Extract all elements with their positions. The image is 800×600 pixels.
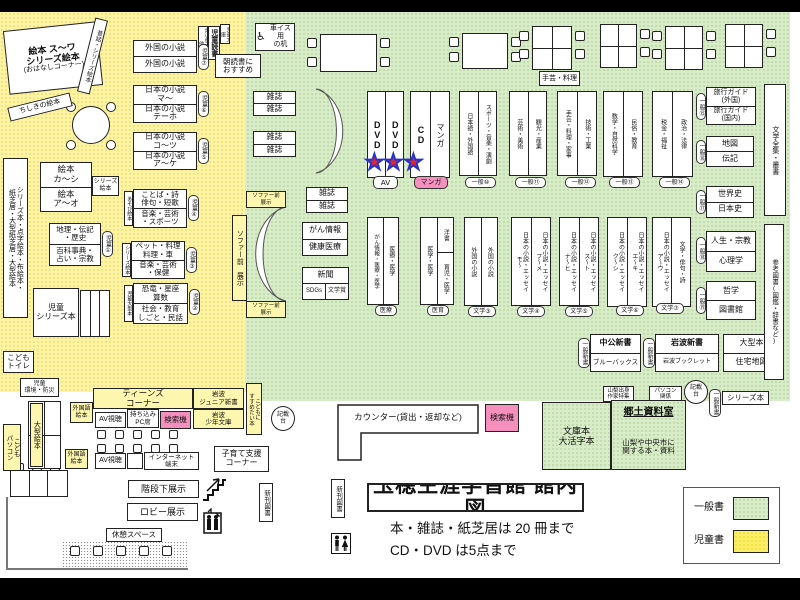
chair [116,546,126,556]
chair [380,38,390,48]
shelf-label: 外国の小説 [481,218,498,305]
sofa-front-display-strip: ソファー前 展示 [232,215,247,301]
chair [766,29,776,39]
shelf-label: 芸術・美術 [510,92,528,175]
chair [519,31,529,41]
chair [766,47,776,57]
av-booth-1: AV視聴 [95,412,126,428]
legend-general-label: 一般書 [689,500,729,516]
shelf-label: ブルーバックス [591,353,640,372]
stack-general-10: 日本語・外国語 スポーツ・音楽・演劇 [459,91,497,176]
shugei-ryori-table-label: 手芸・料理 [539,71,580,86]
shelf-label: ことば・詩 俳句・短歌 [134,190,186,208]
reading-table [600,24,637,68]
shelf-label: 民俗・教育 [623,92,643,176]
badge-jido-6: 児童⑥ [198,91,209,117]
series-ehon-tag: シリーズ 絵本 [92,176,119,196]
shelf-label: 哲学 [707,282,755,300]
shelf-label: 育児・医学 [438,252,454,304]
chair [652,31,662,41]
badge-jido-3: 児童③ [186,247,197,273]
stack-general-11: 芸術・美術 観光・産業 [509,91,547,176]
badge-medical-1: 医療 [375,305,397,316]
borrow-limit-note: 本・雑誌・紙芝居は 20 冊まで [390,517,575,537]
ogata-ehon-strip: 大型絵本 [30,403,43,467]
badge-general-11: 一般⑪ [515,177,546,188]
map-title: 玉穂生涯学習館 館内図 [367,483,584,512]
iwanami-shinsho-shelf: 岩波新書 岩波ブックレット [655,334,719,372]
shelf-label: 雑誌 [307,188,347,200]
kids-shelf-pet: ペット・料理 料理・車 音楽・芸術 ・保健 [131,241,185,279]
shelf-label: マンガ [430,92,450,177]
shelf-label: 日本語・外国語 [460,92,478,175]
lobby-display: ロビー展示 [127,503,198,521]
shelf-label: 政治・法律 [672,92,692,176]
jido-ogata-strip: 児童大型本 [124,285,133,322]
kids-kankyo-box: 児童 環境・防災 [20,378,59,397]
wheelchair-desk-box: ♿ 車イス用 の机 [255,23,295,51]
badge-general-19: 一般⑲ [696,287,706,314]
shelf-label: 数学・自然科学 [604,92,623,176]
chair [151,430,160,439]
badge-literature-7: 文学⑦ [656,303,684,314]
wall-line [6,568,188,570]
wheelchair-desk-label: 車イス用 の机 [267,25,294,48]
badge-general-15: 一般⑮ [696,93,706,120]
shelf-unit [80,290,110,337]
bungaku-zenshu-strip: 文学全集・叢書 [764,84,786,216]
badge-general-14: 一般⑭ [659,177,690,188]
stack-medical-1: がん情報・医療・医学 医療・医学 [367,217,399,305]
curved-shelf [245,205,291,303]
library-floor-map: 絵本 ス〜ワ シリーズ絵本 (おはなしコーナー) 昔話・シリーズ絵本 ちしきの絵… [0,0,800,600]
shelf-label: 新聞 [303,268,348,283]
shelf-label: 日本の小説・エッセイ フ〜メ [531,218,551,305]
chair [706,49,716,59]
kyodo-shiryo-room: 郷土資料室 山梨や中央市に 関する本・資料 [611,400,686,470]
teens-corner-header: ティーンズ コーナー [93,388,193,409]
shelf-label: 地図 [707,137,753,151]
reading-table [10,470,68,497]
shelf-label: 日本の小説・エッセイ ス〜ト [579,218,599,305]
shelf-label: 文学賞 [325,284,348,299]
chair [640,47,650,57]
shelf-label: 音楽・芸術 ・保健 [132,260,184,279]
iwanami-shonen-box: 岩波 少年文庫 [193,409,244,429]
shelf-label: 日本の小説・エッセイ ナ〜ヒ [560,218,579,305]
new-books-box-2: 新刊図書 [331,479,345,518]
chair [93,546,103,556]
stack-general-13: 数学・自然科学 民俗・教育 [603,91,643,177]
chair [133,430,142,439]
badge-literature-5: 文学⑤ [565,306,593,317]
shelf-label: 日本の小説 コ〜ツ [134,133,196,151]
cd-dvd-limit-note: CD・DVD は5点まで [390,539,517,559]
star-icon: ★ [404,152,423,173]
shelf-label: 外国の小説 [134,41,196,56]
chair [97,430,106,439]
shelf-label: 恐竜・星座 算数 [134,284,187,303]
kids-shelf-jp-fiction-ko: 日本の小説 コ〜ツ 日本の小説 ア〜ケ [133,132,197,170]
shelf-label: 図書館 [707,300,755,319]
reading-table [320,34,377,72]
stairs-icon [201,475,227,502]
shelf-label: 外国の小説 [465,218,481,305]
shelf-label: 世界史 [707,187,753,202]
asadoku-recommend-box: 朝読書に おすすめ [215,54,261,78]
badge-general-12: 一般⑫ [565,177,596,188]
stack-literature-7: 日本の小説・エッセイ ア〜ウ 文学・俳句・詩 [652,217,691,307]
shelf-label: 洋書 [438,218,454,252]
sanko-tosho-strip: 参考図書(図鑑・辞書など) [764,224,784,380]
badge-literature-6: 文学⑥ [616,305,644,316]
iwanami-junior-box: 岩波 ジュニア新書 [193,388,244,409]
badge-jido-2: 児童② [189,289,200,315]
kids-shelf-kyoryu: 恐竜・星座 算数 社会・教育 しごと・民話 [133,283,188,324]
chair [307,57,317,67]
badge-jido-5: 児童⑤ [198,138,209,164]
shelf-life-religion: 人生・宗教 心理学 [706,231,756,272]
chair [169,430,178,439]
chair [640,29,650,39]
top-letterbox-bar [0,0,800,12]
shelf-label: 旅行ガイド (国内) [707,106,755,125]
cancer-info-shelf: がん情報 健康医療 [302,222,348,256]
shelf-label: 雑誌 [307,200,347,213]
round-table [72,106,110,144]
shelf-label: 手芸・料理・家事 [558,92,577,175]
toilet-icon [331,533,351,554]
sofa-front-display-2: ソファー前 展示 [246,301,286,318]
shelf-label: 音楽・芸術 ・スポーツ [134,208,186,227]
chair [133,444,142,453]
shelf-label: がん情報・医療・医学 [368,218,383,304]
search-machine-2: 検索機 [485,404,519,432]
shelf-label: 岩波ブックレット [656,353,718,372]
badge-general-10: 一般⑩ [465,177,496,188]
chair [380,57,390,67]
badge-av: AV [373,176,398,189]
shelf-label: 日本の小説・エッセイ ク〜シ [608,218,627,306]
wheelchair-icon: ♿ [256,31,266,43]
shelf-label: 税金・福祉 [653,92,672,176]
chair [106,140,116,150]
kids-shelf-foreign-fiction: 外国の小説 外国の小説 [133,40,197,73]
chair [652,49,662,59]
badge-general-13: 一般⑬ [609,177,640,188]
shelf-label: 雑誌 [254,92,295,103]
reading-table [462,33,508,69]
series-braille-shelf: シリーズ本・点字絵本・布絵本・ 紙芝居・大型紙芝居・大型絵本 [3,158,28,318]
shelf-label: 地理・伝記 ・歴史 [50,224,100,244]
av-booth-2: AV視聴 [95,453,126,469]
shelf-history: 世界史 日本史 [706,186,754,218]
internet-terminal: インターネット 端末 [144,452,199,470]
shelf-label: 人生・宗教 [707,232,755,251]
badge-general-17: 一般⑰ [696,190,706,214]
shelf-label: 雑誌 [254,144,295,157]
shelf-label: ペット・料理 料理・車 [132,242,184,260]
shelf-label: 岩波新書 [656,335,718,353]
badge-jido-4: 児童④ [188,195,199,221]
chair [706,31,716,41]
bottom-letterbox-bar [0,578,800,600]
shelf-label: 日本の小説・エッセイ エ〜キ [627,218,647,306]
stack-medical-2: 医学・医学 洋書 育児・医学 [420,217,454,305]
chuko-shinsho-shelf: 中公新書 ブルーバックス [590,334,641,372]
badge-general-16: 一般⑯ [696,140,706,164]
shelf-label: スポーツ・音楽・演劇 [478,92,497,175]
shelf-label: 日本史 [707,202,753,218]
foreign-ehon-box-1: 外国語 絵本 [70,402,93,423]
kyodo-desc: 山梨や中央市に 関する本・資料 [612,425,685,469]
shelf-label: 雑誌 [254,103,295,115]
shelf-label: 日本の小説・エッセイ ア〜ウ [653,218,671,306]
stack-literature-4: 日本の小説・エッセイ モ〜 日本の小説・エッセイ フ〜メ [511,217,551,306]
booth-box [127,453,143,469]
jido-series-box: 児童 シリーズ本 [33,288,79,337]
kosodate-corner: 子育て支援 コーナー [214,446,269,472]
badge-manga: マンガ [414,176,448,189]
legend-children-label: 児童書 [689,533,729,549]
badge-medical-2: 医育 [427,305,449,316]
chair [66,140,76,150]
chair [162,546,172,556]
shelf-maps-biography: 地図 伝記 [706,136,754,167]
shelf-label: 医学・医学 [421,218,437,304]
chair [519,49,529,59]
stack-literature-5: 日本の小説・エッセイ ナ〜ヒ 日本の小説・エッセイ ス〜ト [559,217,599,306]
shelf-label: 旅行ガイド (外国) [707,88,755,106]
chair [575,49,585,59]
kids-shelf-kotoba: ことば・詩 俳句・短歌 音楽・芸術 ・スポーツ [133,189,187,228]
jido-bunko-strip: 児童文庫 [220,24,230,44]
reading-table [532,26,572,70]
newspaper-shelf: 新聞 SDGs 文学賞 [302,267,349,300]
legend-children-swatch [733,530,769,553]
badge-ippan-shinsho-3: 一般新書 [709,389,721,417]
shelf-label: 観光・産業 [528,92,547,175]
shelf-philosophy: 哲学 図書館 [706,281,756,320]
badge-ippan-shinsho-2: 一般新書 [643,338,655,368]
shelf-label: 絵本 カ〜シ [41,163,91,187]
shelf-label: 日本の小説 ア〜ケ [134,151,196,170]
shelf-label: 医療・医学 [383,218,399,304]
counter-label: カウンター(貸出・返却など) [340,404,476,432]
chair [115,444,124,453]
kodomo-susume-strip: こどもに すすめたい本 [246,383,262,435]
chair [97,444,106,453]
star-icon: ★★ [365,152,403,173]
shelf-label: 外国の小説 [134,56,196,72]
writing-stand-2: 記載 台 [684,380,708,404]
under-stairs-display: 階段下展示 [128,480,199,498]
kids-toilet-label: こども トイレ [3,351,34,373]
kyodo-title: 郷土資料室 [612,401,685,425]
shelf-label: 日本の小説 テーホ [134,104,196,123]
chair [307,38,317,48]
stack-literature-3: 外国の小説 外国の小説 [464,217,498,306]
bunko-ogata-area: 文庫本 大活字本 [542,402,611,470]
shelf-label: 心理学 [707,251,755,271]
shelf-label: 伝記 [707,151,753,166]
kids-shelf-ehon: 絵本 カ〜シ 絵本 ア〜オ [40,162,92,212]
shelf-label: 百科事典・ 占い・宗教 [50,244,100,265]
chair [115,430,124,439]
shelf-label: 雑誌 [254,132,295,144]
magazine-shelf: 雑誌 雑誌 [306,187,348,213]
series-bon-box: シリーズ本 [722,391,769,405]
kids-shelf-chiri: 地理・伝記 ・歴史 百科事典・ 占い・宗教 [49,223,101,266]
byo-pc-seat: 持ち込み PC席 [127,409,159,428]
chair [575,31,585,41]
writing-stand-1: 記載 台 [271,406,295,431]
asobi-ehon-strip: あそび絵本 [124,191,133,226]
sofa-front-display-1: ソファー前 展示 [246,191,286,208]
stack-general-14: 税金・福祉 政治・法律 [652,91,693,177]
chair [139,546,149,556]
kids-shelf-jp-fiction-ma: 日本の小説 マ〜 日本の小説 テーホ [133,85,197,123]
shelf-label: 文学・俳句・詩 [671,218,690,306]
shelf-label: 日本の小説 マ〜 [134,86,196,104]
stack-literature-6: 日本の小説・エッセイ ク〜シ 日本の小説・エッセイ エ〜キ [607,217,647,307]
wall-line [6,497,8,570]
reading-table [665,26,703,70]
legend-general-swatch [733,497,769,520]
shelf-label: 日本の小説・エッセイ モ〜 [512,218,531,305]
shelf-label: 中公新書 [591,335,640,353]
elevator-icon [203,508,222,534]
badge-jido-1: 児童① [102,231,113,257]
badge-general-18: 一般⑱ [696,237,706,264]
shelf-label: 技術・工業 [577,92,597,175]
stack-general-12: 手芸・料理・家事 技術・工業 [557,91,597,176]
series-ehon-strip: シリーズ絵本 [122,243,131,277]
shelf-label: がん情報 [303,223,347,239]
chair [449,37,459,47]
badge-literature-4: 文学④ [517,306,545,317]
foreign-ehon-box-2: 外国語 絵本 [65,449,88,469]
shelf-label: 社会・教育 しごと・民話 [134,303,187,323]
search-machine-1: 検索機 [160,411,191,429]
magazine-shelf: 雑誌 雑誌 [253,131,296,157]
badge-ippan-shinsho-1: 一般新書 [578,338,590,368]
chair [449,52,459,62]
badge-literature-3: 文学③ [468,306,496,317]
shelf-label: 健康医療 [303,239,347,256]
chair [106,102,116,112]
kodomo-pc-box: こども パソコン [3,424,21,471]
curved-shelf [311,87,349,175]
reading-table [725,24,763,68]
shelf-label: 絵本 ア〜オ [41,187,91,212]
shelf-label: SDGs [303,284,325,299]
shelf-travel-guides: 旅行ガイド (外国) 旅行ガイド (国内) [706,87,756,125]
magazine-shelf: 雑誌 雑誌 [253,91,296,116]
badge-jido-7: 児童⑦ [198,44,209,70]
chair [70,546,80,556]
new-books-box-1: 新刊図書 [259,483,273,522]
rest-space-label: 休憩スペース [106,528,162,542]
